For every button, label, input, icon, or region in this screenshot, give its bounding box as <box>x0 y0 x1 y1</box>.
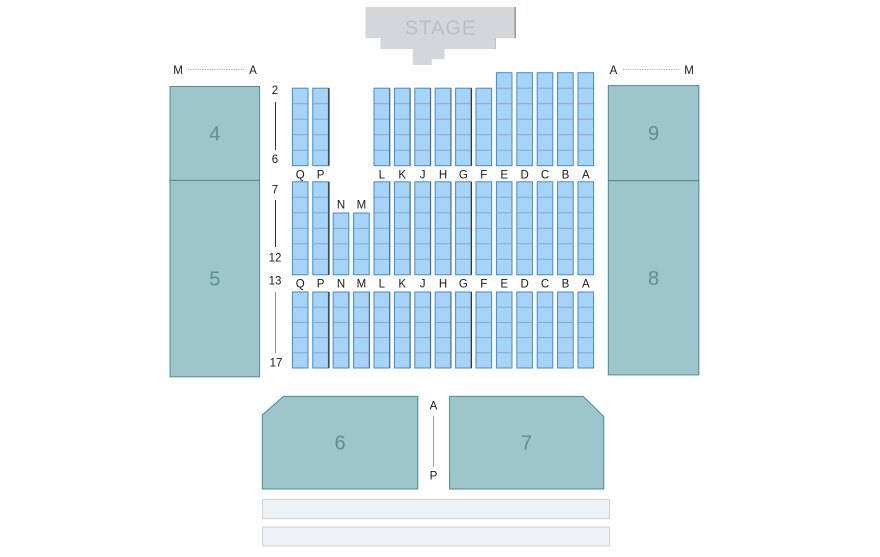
svg-text:J: J <box>420 278 426 290</box>
svg-text:D: D <box>520 169 528 181</box>
svg-text:P: P <box>430 470 438 482</box>
svg-text:M: M <box>357 199 367 211</box>
svg-text:A: A <box>430 401 438 413</box>
svg-text:STAGE: STAGE <box>405 18 476 40</box>
svg-text:E: E <box>500 169 508 181</box>
svg-text:B: B <box>562 169 570 181</box>
svg-text:13: 13 <box>269 276 282 288</box>
svg-text:C: C <box>541 278 549 290</box>
svg-text:K: K <box>398 169 406 181</box>
svg-text:A: A <box>582 278 590 290</box>
svg-text:8: 8 <box>648 268 659 290</box>
svg-text:F: F <box>480 278 487 290</box>
svg-text:G: G <box>459 278 468 290</box>
svg-text:L: L <box>379 169 386 181</box>
svg-text:7: 7 <box>521 433 532 455</box>
svg-text:H: H <box>439 169 447 181</box>
svg-text:P: P <box>317 169 325 181</box>
svg-text:6: 6 <box>272 154 278 166</box>
svg-text:K: K <box>398 278 406 290</box>
svg-text:M: M <box>173 65 183 77</box>
svg-text:N: N <box>337 199 345 211</box>
svg-text:P: P <box>317 278 325 290</box>
svg-text:H: H <box>439 278 447 290</box>
svg-text:G: G <box>459 169 468 181</box>
svg-text:N: N <box>337 278 345 290</box>
svg-text:A: A <box>610 65 618 77</box>
svg-text:D: D <box>520 278 528 290</box>
svg-text:L: L <box>379 278 386 290</box>
svg-text:12: 12 <box>269 252 282 264</box>
svg-text:9: 9 <box>648 123 659 145</box>
svg-text:A: A <box>249 65 257 77</box>
svg-text:2: 2 <box>272 85 278 97</box>
svg-text:M: M <box>357 278 367 290</box>
svg-text:7: 7 <box>272 185 278 197</box>
svg-text:6: 6 <box>334 433 345 455</box>
svg-text:C: C <box>541 169 549 181</box>
svg-text:J: J <box>420 169 426 181</box>
svg-text:M: M <box>684 65 694 77</box>
svg-text:17: 17 <box>270 357 283 369</box>
svg-text:Q: Q <box>296 169 305 181</box>
svg-text:B: B <box>562 278 570 290</box>
svg-text:E: E <box>500 278 508 290</box>
svg-text:F: F <box>480 169 487 181</box>
svg-text:A: A <box>582 169 590 181</box>
svg-text:Q: Q <box>296 278 305 290</box>
svg-text:5: 5 <box>209 269 220 291</box>
svg-text:4: 4 <box>209 124 220 146</box>
